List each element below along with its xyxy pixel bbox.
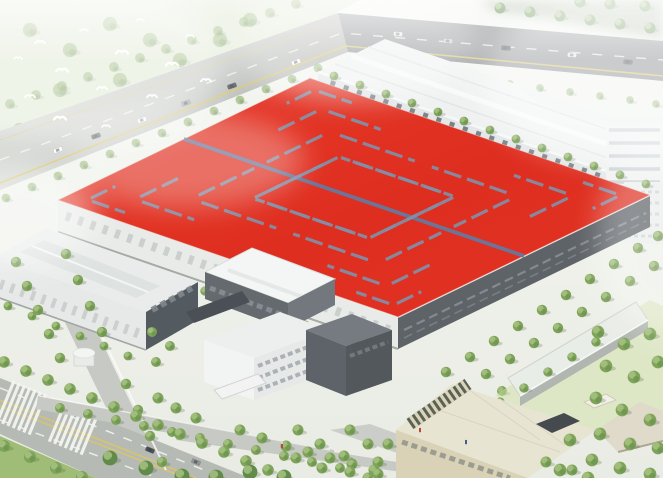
scene-canvas bbox=[0, 0, 663, 478]
global-haze bbox=[0, 0, 663, 478]
aerial-campus-rendering bbox=[0, 0, 663, 478]
haze-overlays bbox=[0, 0, 663, 478]
